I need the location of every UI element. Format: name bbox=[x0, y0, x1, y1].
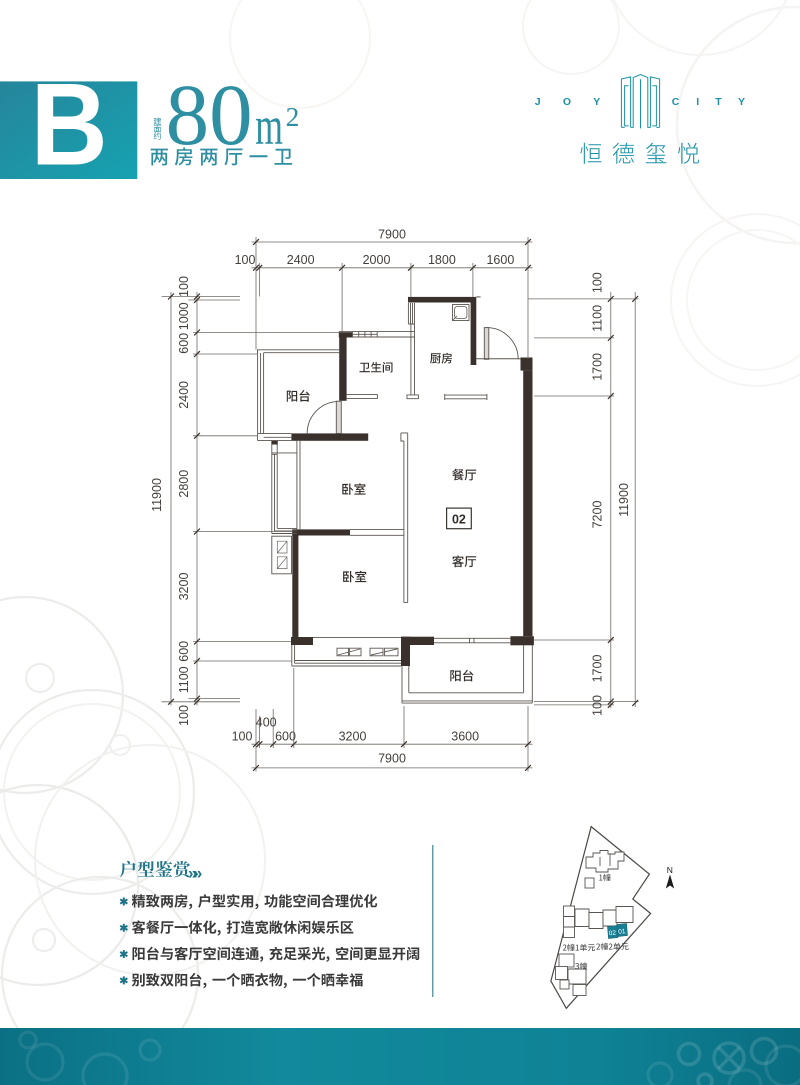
svg-text:2000: 2000 bbox=[363, 253, 391, 267]
svg-text:100: 100 bbox=[177, 276, 191, 297]
svg-text:1700: 1700 bbox=[591, 353, 605, 381]
svg-text:1100: 1100 bbox=[177, 666, 191, 693]
svg-text:3600: 3600 bbox=[451, 729, 479, 743]
svg-text:1700: 1700 bbox=[591, 655, 605, 683]
svg-text:600: 600 bbox=[275, 729, 296, 743]
svg-text:100: 100 bbox=[591, 272, 605, 293]
svg-text:600: 600 bbox=[177, 641, 191, 662]
svg-text:7900: 7900 bbox=[378, 228, 406, 242]
svg-text:2400: 2400 bbox=[287, 253, 315, 267]
svg-text:7200: 7200 bbox=[591, 501, 605, 529]
svg-text:100: 100 bbox=[591, 695, 605, 716]
svg-text:B: B bbox=[31, 59, 108, 190]
svg-text:N: N bbox=[667, 865, 673, 875]
svg-text:7900: 7900 bbox=[378, 751, 406, 765]
svg-text:1000: 1000 bbox=[177, 302, 191, 330]
svg-text:01: 01 bbox=[618, 928, 626, 936]
svg-text:1600: 1600 bbox=[486, 253, 514, 267]
svg-text:600: 600 bbox=[177, 333, 191, 354]
svg-text:3200: 3200 bbox=[339, 729, 367, 743]
svg-text:2: 2 bbox=[286, 101, 300, 132]
svg-text:11900: 11900 bbox=[150, 478, 164, 512]
svg-text:2400: 2400 bbox=[177, 381, 191, 409]
svg-text:11900: 11900 bbox=[617, 483, 631, 517]
svg-text:100: 100 bbox=[177, 705, 191, 726]
svg-text:100: 100 bbox=[232, 729, 253, 743]
svg-text:02: 02 bbox=[452, 512, 466, 526]
svg-text:m: m bbox=[255, 96, 283, 156]
svg-text:3200: 3200 bbox=[177, 573, 191, 601]
svg-text:O: O bbox=[563, 96, 571, 108]
svg-text:100: 100 bbox=[235, 253, 256, 267]
svg-text:Y: Y bbox=[738, 96, 745, 108]
svg-text:»»: »» bbox=[188, 865, 202, 883]
svg-text:I: I bbox=[696, 96, 699, 108]
svg-text:80: 80 bbox=[166, 66, 253, 163]
svg-text:Y: Y bbox=[593, 96, 600, 108]
svg-text:1100: 1100 bbox=[591, 305, 605, 332]
svg-text:T: T bbox=[715, 96, 722, 108]
svg-text:C: C bbox=[672, 96, 680, 108]
svg-text:1800: 1800 bbox=[428, 253, 456, 267]
svg-text:02: 02 bbox=[609, 930, 617, 938]
svg-text:J: J bbox=[535, 96, 541, 108]
svg-text:400: 400 bbox=[256, 716, 277, 730]
svg-text:2800: 2800 bbox=[177, 470, 191, 498]
